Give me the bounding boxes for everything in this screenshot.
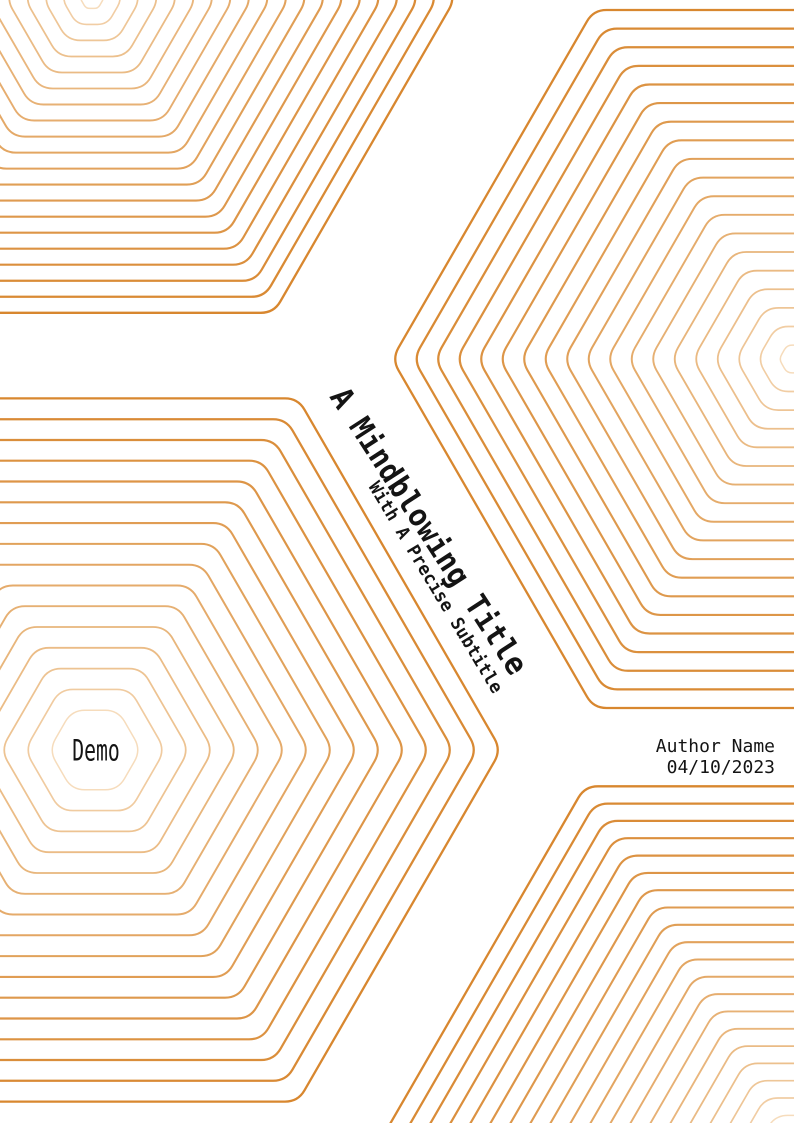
demo-label: Demo [72,737,119,766]
hex-group-bottom-right [378,786,794,1123]
author-name: Author Name [656,736,775,757]
cover-page: A Mindblowing Title With A Precise Subti… [0,0,794,1123]
hex-group-top-left [0,0,452,313]
date: 04/10/2023 [656,757,775,778]
hexagon-pattern [0,0,794,1123]
author-block: Author Name 04/10/2023 [656,736,775,778]
